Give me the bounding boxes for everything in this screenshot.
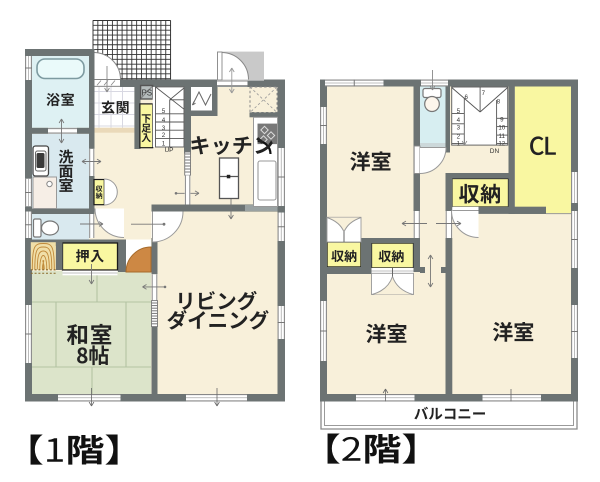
svg-text:1: 1 bbox=[162, 141, 166, 148]
svg-text:7: 7 bbox=[482, 90, 486, 97]
svg-text:4: 4 bbox=[162, 117, 166, 124]
svg-text:6: 6 bbox=[464, 94, 468, 101]
svg-text:DN: DN bbox=[490, 148, 500, 155]
svg-text:10: 10 bbox=[498, 125, 505, 132]
svg-text:3: 3 bbox=[162, 125, 166, 132]
svg-text:11: 11 bbox=[499, 133, 506, 140]
svg-text:2: 2 bbox=[457, 133, 461, 140]
svg-text:4: 4 bbox=[457, 117, 461, 124]
svg-text:UP: UP bbox=[164, 147, 173, 154]
svg-text:PS: PS bbox=[141, 88, 152, 97]
svg-text:2: 2 bbox=[162, 132, 166, 139]
svg-text:5: 5 bbox=[162, 108, 166, 115]
svg-text:12: 12 bbox=[498, 140, 505, 147]
svg-text:5: 5 bbox=[457, 108, 461, 115]
svg-text:1: 1 bbox=[457, 140, 461, 147]
svg-text:9: 9 bbox=[500, 117, 504, 124]
svg-text:3: 3 bbox=[457, 125, 461, 132]
svg-text:8: 8 bbox=[497, 99, 501, 106]
